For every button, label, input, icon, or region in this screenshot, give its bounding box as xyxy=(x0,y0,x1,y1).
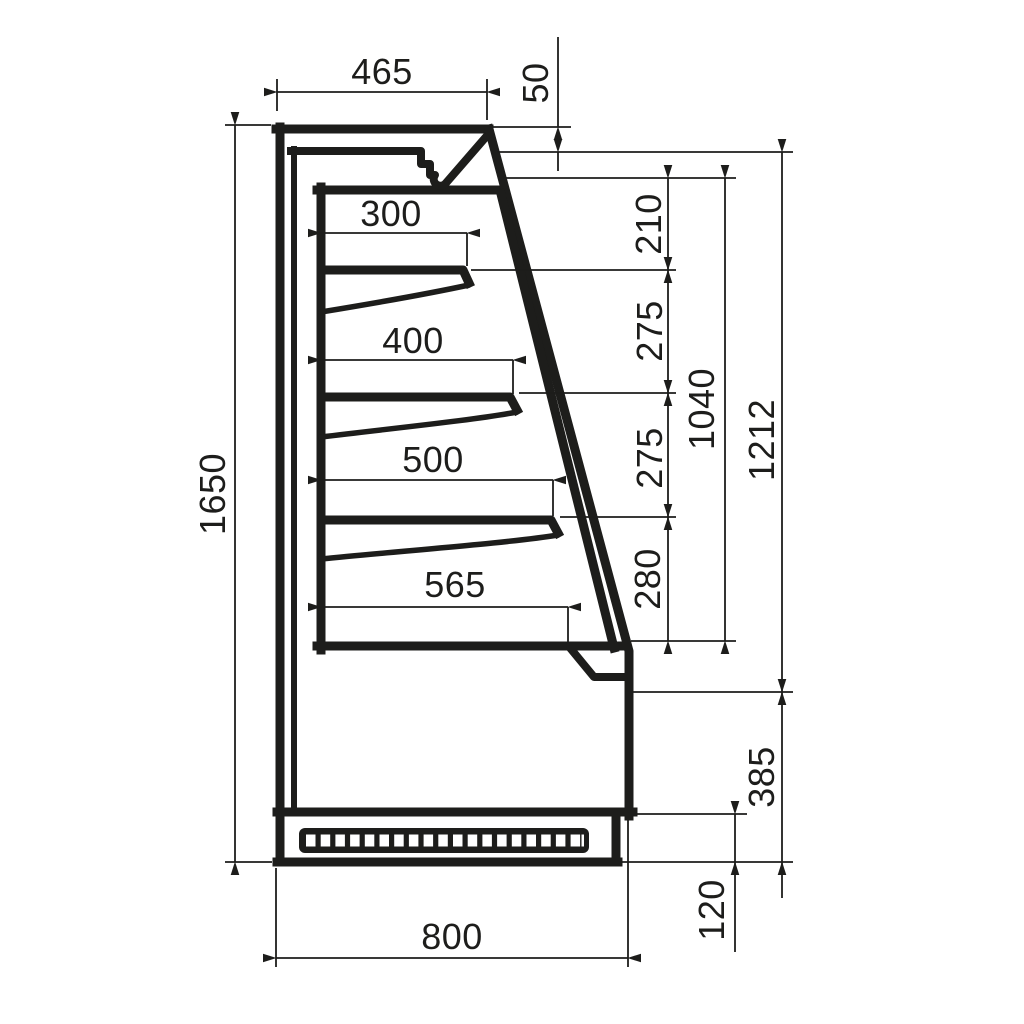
dim-label-275b: 275 xyxy=(632,427,668,489)
dim-label-400: 400 xyxy=(382,323,444,359)
dim-label-120: 120 xyxy=(694,879,730,941)
dim-label-280: 280 xyxy=(630,548,666,610)
shelf-1-wave xyxy=(321,285,469,312)
cabinet-outline xyxy=(276,127,633,862)
dim-label-1650: 1650 xyxy=(195,453,231,535)
dim-label-500: 500 xyxy=(402,442,464,478)
shelf-2-wave xyxy=(321,412,517,437)
technical-drawing: 465 50 300 400 500 565 210 275 275 280 1… xyxy=(0,0,1024,1024)
dim-label-465: 465 xyxy=(351,54,413,90)
canopy-profile xyxy=(291,138,485,186)
drawing-canvas xyxy=(0,0,1024,1024)
dim-label-1212: 1212 xyxy=(744,399,780,481)
shelf-2 xyxy=(321,397,517,410)
dim-label-385: 385 xyxy=(744,746,780,808)
shelves xyxy=(321,270,558,533)
shelf-3-wave xyxy=(321,535,558,559)
dim-label-50: 50 xyxy=(518,62,554,103)
dim-label-800: 800 xyxy=(421,919,483,955)
dim-label-300: 300 xyxy=(360,196,422,232)
shelf-1 xyxy=(321,270,469,283)
front-chamfer xyxy=(571,649,629,677)
shelf-3 xyxy=(321,520,558,533)
front-inner-slant xyxy=(501,194,614,648)
dim-label-210: 210 xyxy=(631,193,667,255)
dim-label-565: 565 xyxy=(424,567,486,603)
ventilation-grille xyxy=(299,828,589,853)
dim-label-275a: 275 xyxy=(632,300,668,362)
canopy-bottom-line xyxy=(291,138,485,186)
dim-label-1040: 1040 xyxy=(684,368,720,450)
